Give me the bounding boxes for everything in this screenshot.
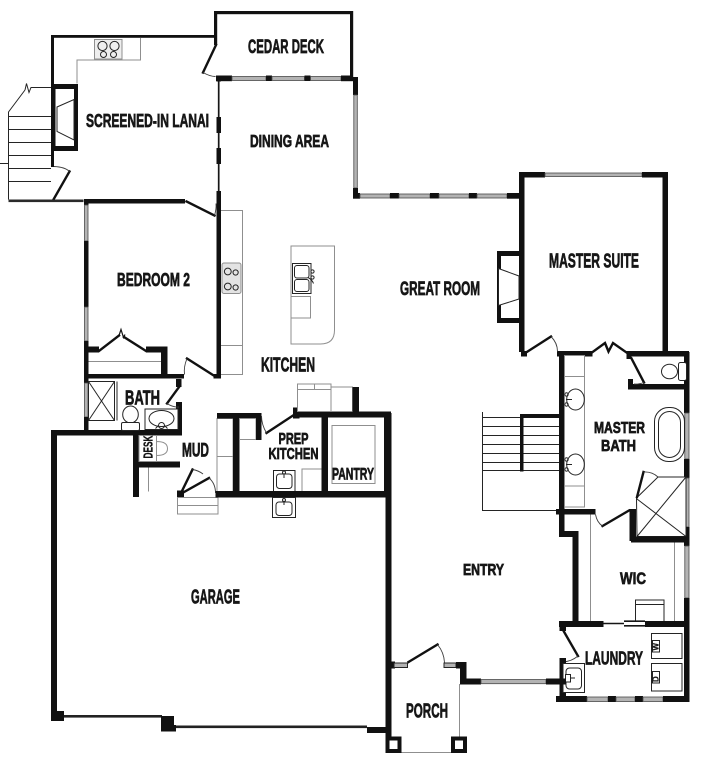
svg-text:CEDAR DECK: CEDAR DECK xyxy=(248,37,324,58)
svg-text:SCREENED-IN LANAI: SCREENED-IN LANAI xyxy=(86,111,209,131)
svg-text:MASTER: MASTER xyxy=(594,420,645,437)
svg-text:W: W xyxy=(652,643,661,651)
svg-text:KITCHEN: KITCHEN xyxy=(269,446,319,463)
svg-text:DINING AREA: DINING AREA xyxy=(250,131,329,151)
svg-text:PORCH: PORCH xyxy=(406,701,448,723)
svg-text:MUD: MUD xyxy=(182,441,209,462)
svg-text:LAUNDRY: LAUNDRY xyxy=(585,649,643,669)
svg-text:DESK: DESK xyxy=(141,435,156,458)
svg-text:D: D xyxy=(652,676,661,682)
svg-text:PANTRY: PANTRY xyxy=(332,465,374,484)
svg-text:GREAT ROOM: GREAT ROOM xyxy=(400,278,480,300)
svg-text:BATH: BATH xyxy=(601,438,636,455)
svg-text:BATH: BATH xyxy=(125,388,160,410)
svg-text:GARAGE: GARAGE xyxy=(191,587,240,609)
svg-text:ENTRY: ENTRY xyxy=(463,562,505,579)
svg-text:BEDROOM 2: BEDROOM 2 xyxy=(117,270,190,290)
svg-text:WIC: WIC xyxy=(620,570,646,588)
svg-text:MASTER SUITE: MASTER SUITE xyxy=(549,251,639,273)
svg-text:KITCHEN: KITCHEN xyxy=(261,355,315,377)
